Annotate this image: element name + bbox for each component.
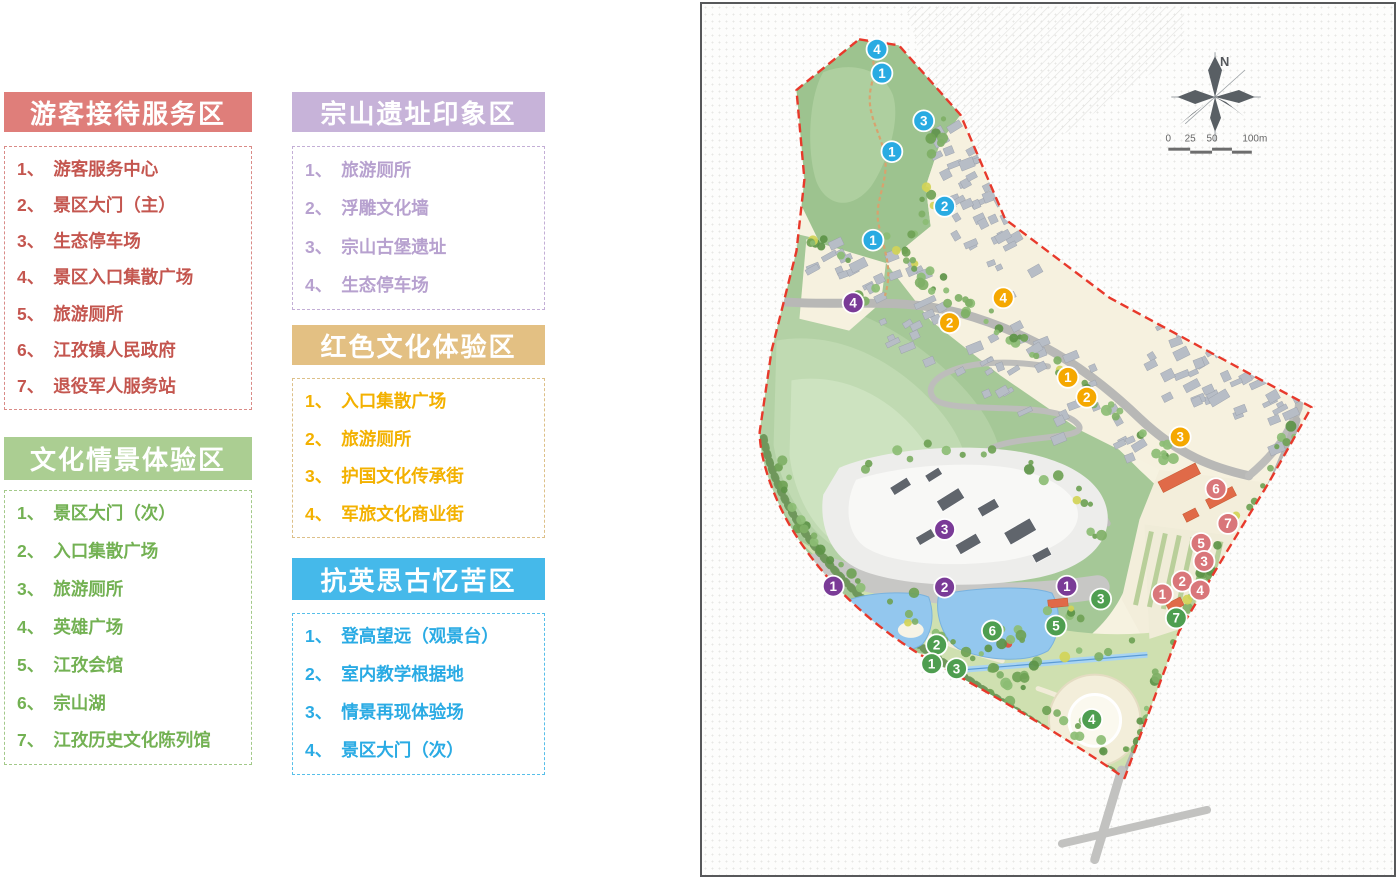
map-marker-zongshan-ruins-2: 2: [934, 577, 955, 598]
svg-text:4: 4: [849, 295, 857, 310]
svg-text:1: 1: [1159, 587, 1167, 602]
zone-panel-culture-scene: 文化情景体验区 1、景区大门（次）2、入口集散广场3、旅游厕所4、英雄广场5、江…: [4, 437, 252, 767]
zone-list: 1、景区大门（次）2、入口集散广场3、旅游厕所4、英雄广场5、江孜会馆6、宗山湖…: [4, 490, 252, 765]
map-marker-visitor-service-1: 1: [1152, 584, 1173, 605]
svg-text:1: 1: [1064, 370, 1072, 385]
zone-title: 游客接待服务区: [30, 94, 226, 131]
zone-item: 2、入口集散广场: [17, 542, 247, 561]
svg-text:2: 2: [941, 199, 948, 214]
svg-text:7: 7: [1173, 611, 1180, 626]
svg-text:5: 5: [1052, 619, 1060, 634]
map-marker-culture-scene-3: 3: [1090, 589, 1111, 610]
svg-text:7: 7: [1224, 516, 1231, 531]
zone-item: 4、生态停车场: [305, 276, 540, 295]
scale-bar: 0 25 50 100m: [1166, 134, 1268, 154]
svg-text:1: 1: [869, 233, 877, 248]
zone-item: 3、情景再现体验场: [305, 703, 540, 722]
svg-text:4: 4: [873, 42, 881, 57]
map-marker-visitor-service-6: 6: [1206, 478, 1227, 499]
svg-text:3: 3: [920, 114, 927, 129]
site-plan-map: N 0 25 50 100m 4131214421233121675324137…: [700, 2, 1396, 877]
svg-text:5: 5: [1197, 536, 1205, 551]
zone-list: 1、登高望远（观景台）2、室内教学根据地3、情景再现体验场4、景区大门（次）: [292, 613, 545, 775]
zone-header: 游客接待服务区: [4, 92, 252, 132]
svg-text:1: 1: [830, 579, 838, 594]
svg-text:3: 3: [941, 522, 948, 537]
north-label: N: [1220, 54, 1229, 69]
zone-list: 1、入口集散广场2、旅游厕所3、护国文化传承街4、军旅文化商业街: [292, 378, 545, 538]
zone-item: 1、登高望远（观景台）: [305, 627, 540, 646]
zone-item: 5、江孜会馆: [17, 656, 247, 675]
svg-text:6: 6: [1212, 481, 1219, 496]
svg-text:2: 2: [1178, 574, 1185, 589]
zone-item: 4、军旅文化商业街: [305, 505, 540, 524]
zone-item: 4、景区入口集散广场: [17, 268, 247, 287]
map-marker-culture-scene-6: 6: [982, 620, 1003, 641]
zone-item: 4、英雄广场: [17, 618, 247, 637]
map-marker-culture-scene-5: 5: [1046, 615, 1067, 636]
zone-panel-red-culture: 红色文化体验区 1、入口集散广场2、旅游厕所3、护国文化传承街4、军旅文化商业街: [292, 325, 545, 540]
map-marker-anti-british-1: 1: [863, 230, 884, 251]
zone-title: 抗英思古忆苦区: [320, 561, 516, 598]
master-plan-sheet: 游客接待服务区 1、游客服务中心2、景区大门（主）3、生态停车场4、景区入口集散…: [0, 0, 1400, 890]
zone-item: 7、江孜历史文化陈列馆: [17, 731, 247, 750]
svg-text:2: 2: [941, 580, 948, 595]
svg-text:1: 1: [888, 144, 896, 159]
svg-text:1: 1: [1063, 579, 1071, 594]
zone-item: 1、入口集散广场: [305, 392, 540, 411]
map-marker-culture-scene-1: 1: [921, 653, 942, 674]
zone-item: 6、宗山湖: [17, 694, 247, 713]
map-marker-anti-british-3: 3: [913, 110, 934, 131]
svg-text:3: 3: [1177, 430, 1184, 445]
svg-text:3: 3: [953, 661, 960, 676]
zone-item: 1、游客服务中心: [17, 160, 247, 179]
svg-text:100m: 100m: [1242, 134, 1267, 145]
svg-text:3: 3: [1200, 554, 1207, 569]
zone-panel-anti-british: 抗英思古忆苦区 1、登高望远（观景台）2、室内教学根据地3、情景再现体验场4、景…: [292, 558, 545, 778]
map-marker-zongshan-ruins-4: 4: [843, 292, 864, 313]
svg-text:2: 2: [1083, 390, 1090, 405]
svg-text:2: 2: [946, 315, 953, 330]
zone-item: 3、宗山古堡遗址: [305, 238, 540, 257]
zone-item: 2、室内教学根据地: [305, 665, 540, 684]
north-arrow: N: [1171, 52, 1260, 141]
svg-text:4: 4: [1000, 290, 1008, 305]
svg-text:3: 3: [1097, 592, 1104, 607]
map-marker-zongshan-ruins-3: 3: [934, 519, 955, 540]
map-marker-anti-british-1: 1: [881, 141, 902, 162]
zone-item: 3、旅游厕所: [17, 580, 247, 599]
map-marker-visitor-service-3: 3: [1194, 551, 1215, 572]
map-marker-culture-scene-2: 2: [926, 634, 947, 655]
zone-title: 红色文化体验区: [320, 327, 516, 364]
map-marker-anti-british-4: 4: [867, 39, 888, 60]
zone-item: 2、景区大门（主）: [17, 196, 247, 215]
map-marker-anti-british-2: 2: [934, 196, 955, 217]
zone-list: 1、游客服务中心2、景区大门（主）3、生态停车场4、景区入口集散广场5、旅游厕所…: [4, 146, 252, 410]
zone-item: 4、景区大门（次）: [305, 741, 540, 760]
map-marker-red-culture-3: 3: [1170, 427, 1191, 448]
svg-text:6: 6: [989, 624, 996, 639]
map-marker-red-culture-2: 2: [939, 312, 960, 333]
map-marker-red-culture-4: 4: [993, 287, 1014, 308]
map-marker-visitor-service-4: 4: [1190, 580, 1211, 601]
zone-header: 文化情景体验区: [4, 437, 252, 480]
map-marker-culture-scene-3: 3: [946, 658, 967, 679]
outside-roads: [1062, 770, 1207, 859]
zone-header: 抗英思古忆苦区: [292, 558, 545, 600]
map-marker-red-culture-1: 1: [1057, 367, 1078, 388]
zone-item: 6、江孜镇人民政府: [17, 341, 247, 360]
svg-text:4: 4: [1088, 712, 1096, 727]
map-marker-zongshan-ruins-1: 1: [823, 576, 844, 597]
zone-title: 文化情景体验区: [30, 440, 226, 477]
svg-text:4: 4: [1196, 583, 1204, 598]
svg-text:2: 2: [933, 637, 940, 652]
zone-title: 宗山遗址印象区: [320, 94, 516, 131]
site-plan-svg: N 0 25 50 100m 4131214421233121675324137…: [702, 4, 1394, 875]
zone-item: 2、旅游厕所: [305, 430, 540, 449]
zone-item: 7、退役军人服务站: [17, 377, 247, 396]
map-marker-zongshan-ruins-1: 1: [1056, 576, 1077, 597]
zone-item: 1、旅游厕所: [305, 161, 540, 180]
zone-item: 1、景区大门（次）: [17, 504, 247, 523]
svg-text:1: 1: [928, 656, 936, 671]
zone-panel-visitor-service: 游客接待服务区 1、游客服务中心2、景区大门（主）3、生态停车场4、景区入口集散…: [4, 92, 252, 412]
map-marker-culture-scene-7: 7: [1166, 608, 1187, 629]
zone-item: 3、生态停车场: [17, 232, 247, 251]
svg-text:25: 25: [1185, 134, 1197, 145]
map-marker-red-culture-2: 2: [1076, 387, 1097, 408]
zone-item: 5、旅游厕所: [17, 305, 247, 324]
map-marker-culture-scene-4: 4: [1081, 709, 1102, 730]
map-marker-visitor-service-7: 7: [1218, 513, 1239, 534]
zone-header: 宗山遗址印象区: [292, 92, 545, 132]
svg-text:0: 0: [1166, 134, 1172, 145]
svg-text:50: 50: [1207, 134, 1219, 145]
zone-header: 红色文化体验区: [292, 325, 545, 365]
zone-list: 1、旅游厕所2、浮雕文化墙3、宗山古堡遗址4、生态停车场: [292, 146, 545, 310]
map-marker-anti-british-1: 1: [872, 63, 893, 84]
svg-text:1: 1: [878, 66, 886, 81]
zone-item: 2、浮雕文化墙: [305, 199, 540, 218]
zone-item: 3、护国文化传承街: [305, 467, 540, 486]
zone-panel-zongshan-ruins: 宗山遗址印象区 1、旅游厕所2、浮雕文化墙3、宗山古堡遗址4、生态停车场: [292, 92, 545, 312]
